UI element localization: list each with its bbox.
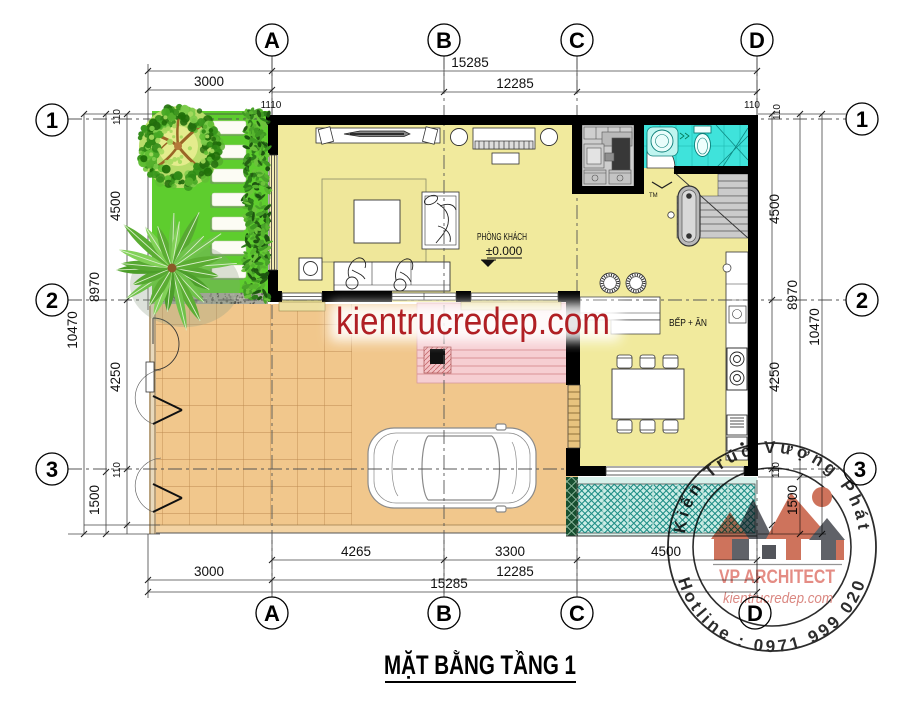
svg-text:1: 1 [856,107,868,132]
svg-text:4500: 4500 [651,544,681,559]
svg-text:C: C [569,601,585,626]
svg-text:3: 3 [46,457,58,482]
svg-text:110: 110 [772,104,783,120]
svg-text:15285: 15285 [430,576,468,591]
svg-text:4500: 4500 [767,194,782,224]
svg-text:3000: 3000 [194,74,224,89]
svg-text:110: 110 [112,109,123,125]
svg-text:2: 2 [46,288,58,313]
svg-text:±0.000: ±0.000 [486,244,523,258]
svg-text:3: 3 [854,457,866,482]
svg-text:BẾP + ĂN: BẾP + ĂN [669,316,707,329]
svg-text:PHÒNG KHÁCH: PHÒNG KHÁCH [477,230,527,243]
svg-text:MẶT BẰNG TẦNG 1: MẶT BẰNG TẦNG 1 [384,649,576,680]
svg-text:1500: 1500 [87,485,102,515]
svg-text:B: B [436,28,452,53]
svg-text:4250: 4250 [108,362,123,392]
svg-text:1110: 1110 [261,100,282,111]
svg-text:12285: 12285 [496,76,534,91]
svg-text:kientrucredep.com: kientrucredep.com [336,301,610,343]
svg-text:110: 110 [771,462,782,478]
svg-text:8970: 8970 [87,272,102,302]
svg-text:10470: 10470 [65,311,80,349]
svg-text:3000: 3000 [194,564,224,579]
svg-text:A: A [264,601,280,626]
svg-text:110: 110 [112,462,123,478]
svg-text:8970: 8970 [785,280,800,310]
svg-text:3300: 3300 [495,544,525,559]
svg-text:A: A [264,28,280,53]
svg-text:2: 2 [856,288,868,313]
svg-text:12285: 12285 [496,564,534,579]
svg-text:TM: TM [649,193,658,199]
svg-text:4250: 4250 [767,362,782,392]
svg-text:VP ARCHITECT: VP ARCHITECT [719,567,835,588]
svg-text:C: C [569,28,585,53]
svg-text:4500: 4500 [108,191,123,221]
svg-text:D: D [749,28,765,53]
svg-text:4265: 4265 [341,544,371,559]
svg-text:kientrucredep.com: kientrucredep.com [723,590,833,607]
svg-text:110: 110 [744,100,760,111]
svg-text:10470: 10470 [807,308,822,346]
svg-text:B: B [436,601,452,626]
svg-text:15285: 15285 [451,55,489,70]
svg-text:1: 1 [46,108,58,133]
